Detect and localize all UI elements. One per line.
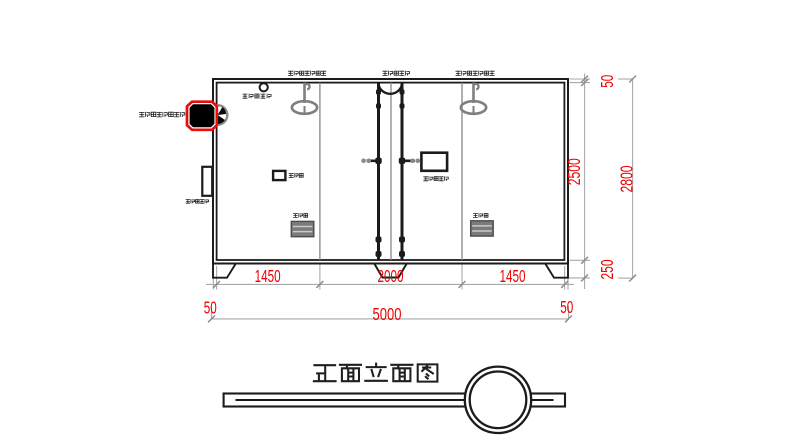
svg-text:250: 250 (597, 259, 617, 279)
svg-text:5000: 5000 (373, 304, 402, 324)
svg-text:50: 50 (204, 298, 217, 318)
svg-text:2800: 2800 (616, 165, 636, 192)
svg-text:1450: 1450 (255, 266, 281, 286)
svg-text:2000: 2000 (378, 266, 404, 286)
svg-text:2500: 2500 (564, 158, 584, 185)
svg-text:1450: 1450 (500, 266, 526, 286)
svg-text:50: 50 (560, 297, 573, 317)
svg-text:50: 50 (597, 75, 617, 88)
